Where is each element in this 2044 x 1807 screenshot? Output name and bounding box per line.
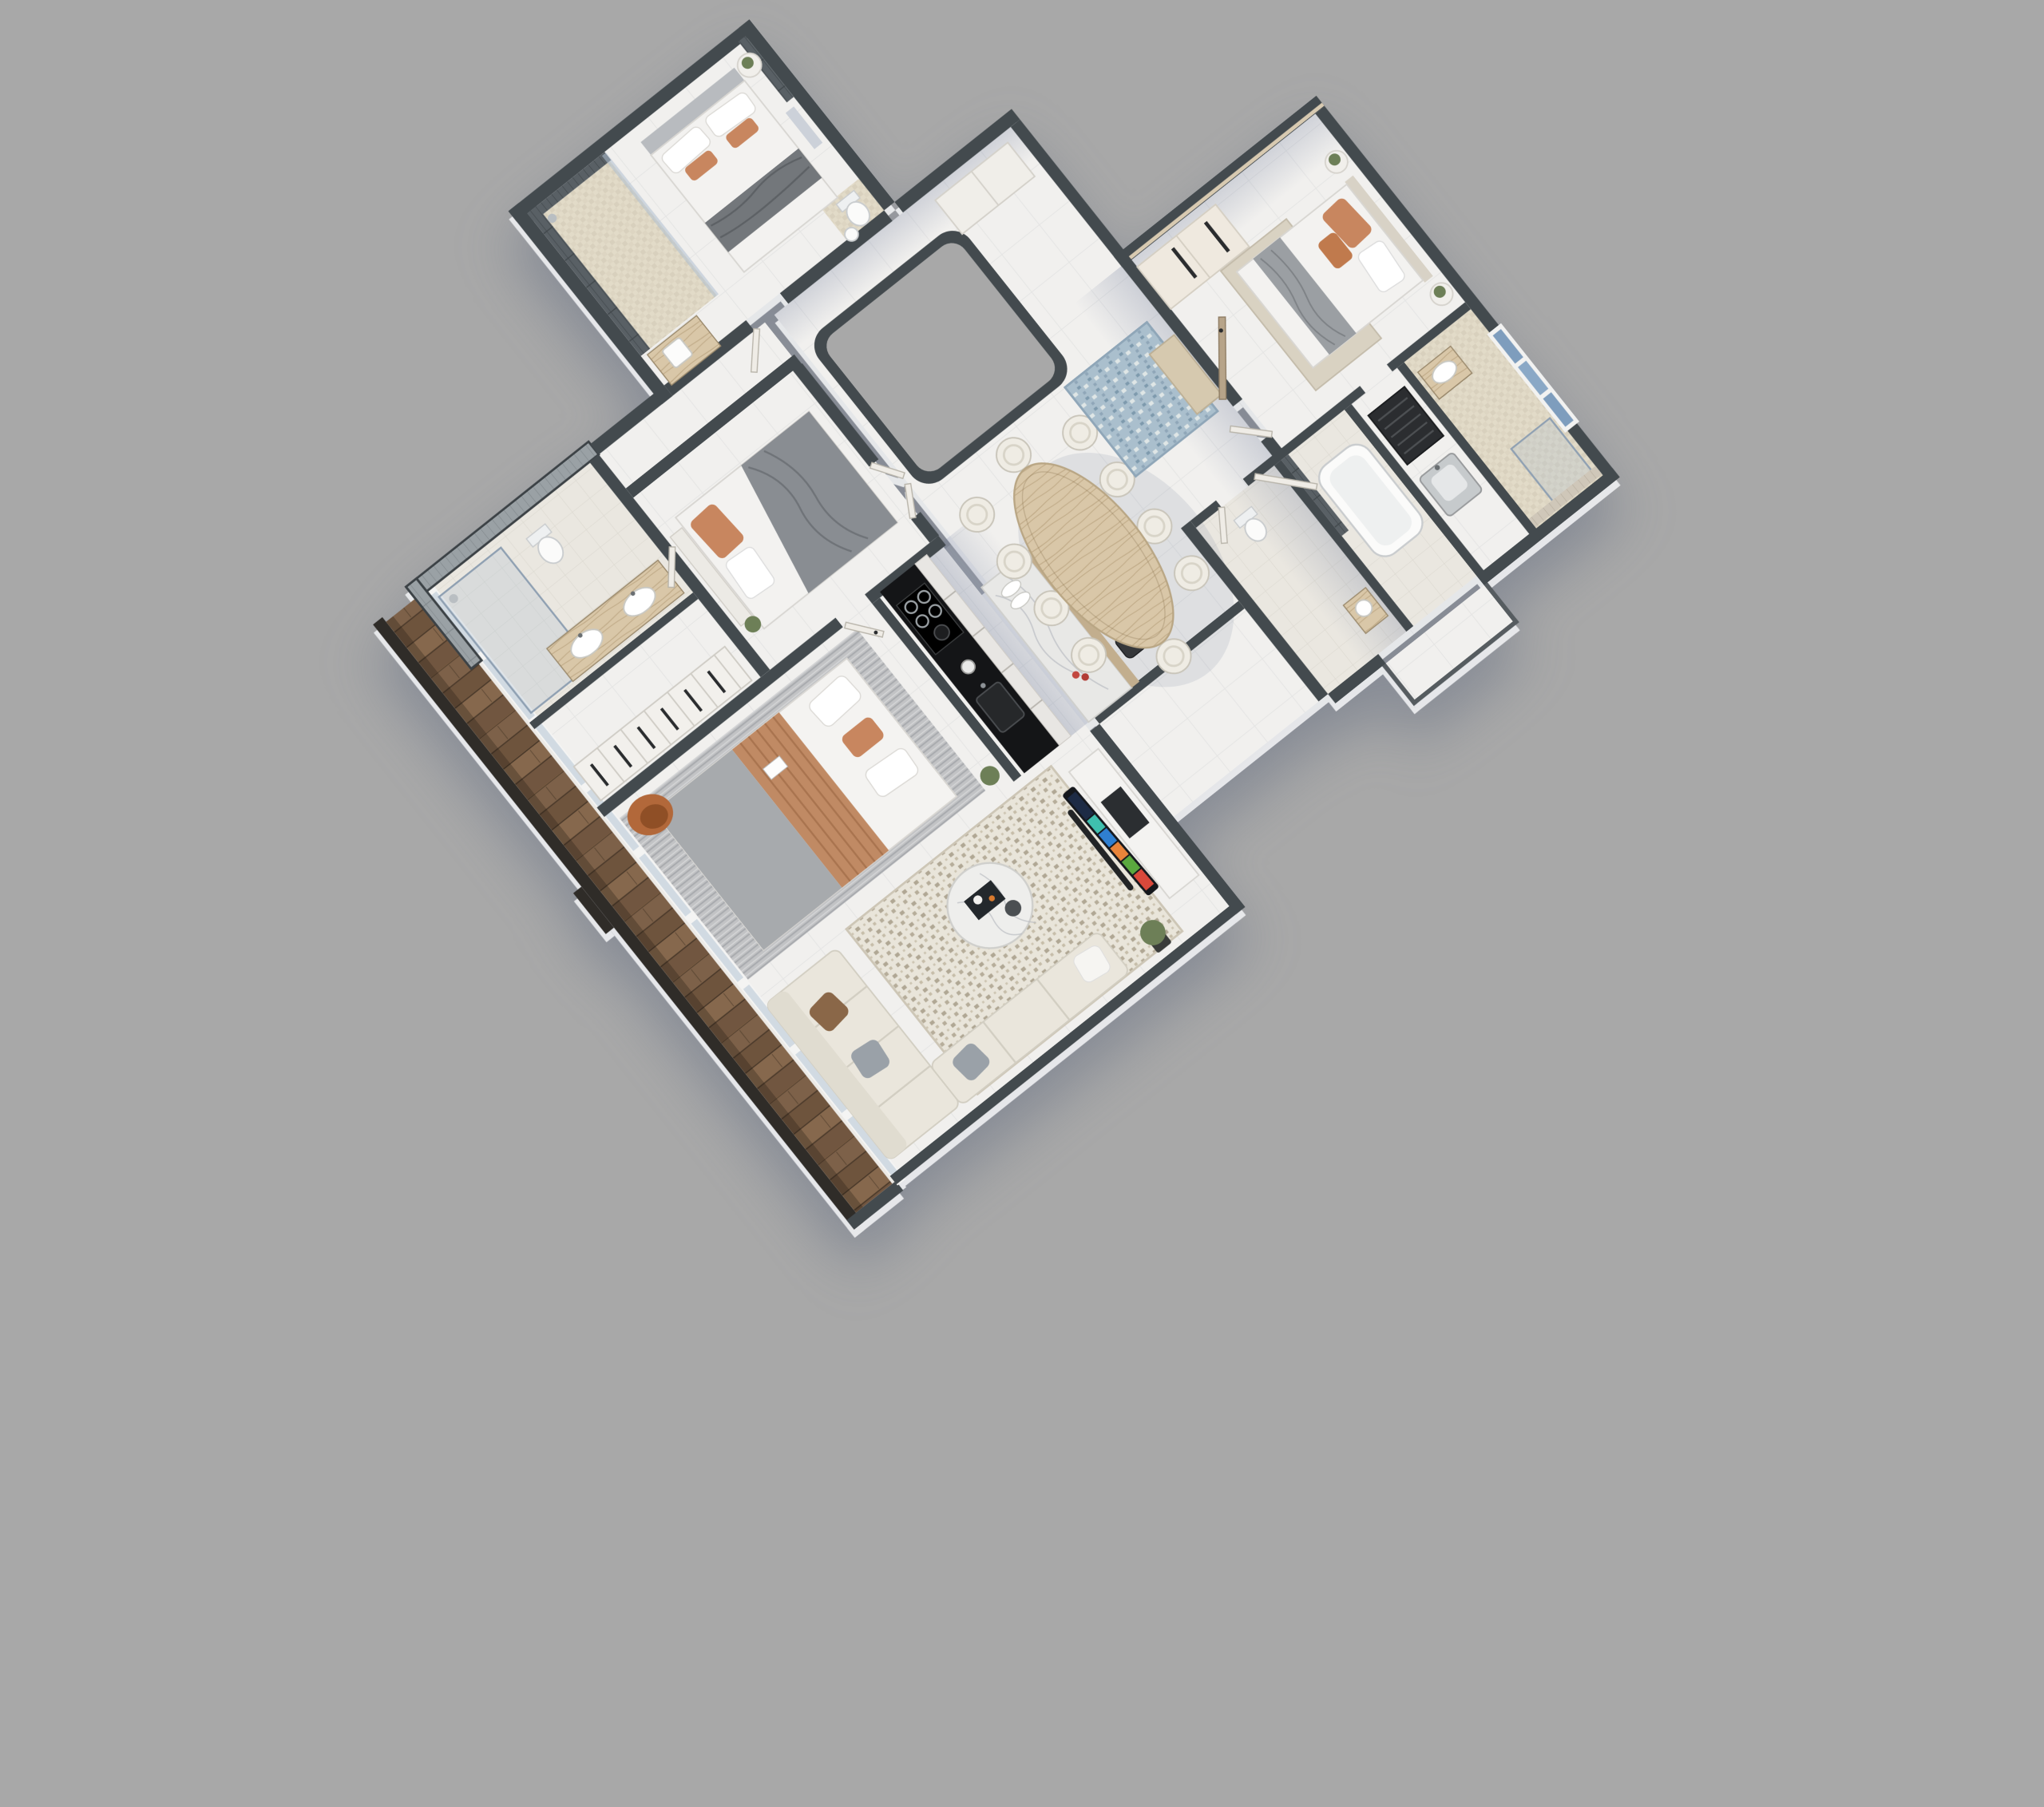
bathroom-door-leaf xyxy=(668,547,675,588)
entry-door xyxy=(1218,317,1226,399)
scene-background xyxy=(0,0,2044,1807)
apartment-plan xyxy=(178,0,1722,1270)
door-handle xyxy=(1219,328,1223,332)
